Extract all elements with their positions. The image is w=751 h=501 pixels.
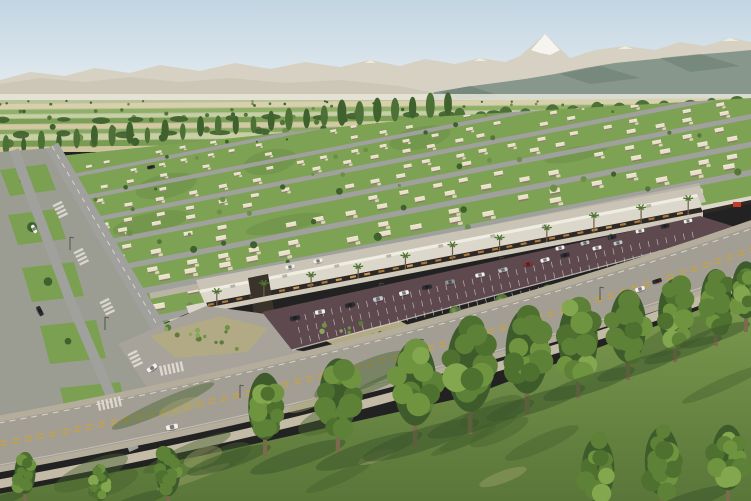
- yard-tree: [490, 135, 495, 140]
- poplar-tree: [38, 131, 45, 152]
- hedgerow-tree: [13, 131, 29, 139]
- poplar-tree: [145, 127, 150, 143]
- tree-foliage: [576, 471, 595, 490]
- house-parapet: [319, 292, 332, 296]
- hedgerow-tree: [254, 128, 270, 134]
- tree-foliage: [166, 454, 177, 465]
- poplar-tree: [285, 108, 293, 131]
- tree-foliage: [522, 315, 544, 337]
- poplar-tree: [409, 97, 416, 119]
- orchard-tree: [94, 109, 98, 113]
- car-glass: [425, 285, 429, 289]
- yard-tree: [423, 130, 427, 134]
- car-glass: [448, 280, 452, 284]
- orchard-tree: [251, 100, 253, 102]
- poplar-tree: [373, 98, 381, 123]
- orchard-tree: [535, 103, 538, 106]
- light-pole-arm: [500, 257, 504, 258]
- yard-tree: [453, 122, 458, 127]
- yard-tree: [250, 241, 257, 248]
- yard-tree: [126, 230, 132, 236]
- orchard-tree: [326, 101, 328, 103]
- tree-foliage: [598, 468, 615, 485]
- shrub: [214, 341, 217, 344]
- orchard-tree: [510, 103, 513, 106]
- poplar-tree: [162, 119, 169, 140]
- orchard-tree: [251, 102, 254, 105]
- yard-tree: [333, 154, 338, 159]
- yard-tree: [311, 173, 314, 176]
- palm-trunk: [311, 275, 312, 288]
- shrub: [224, 330, 227, 333]
- yard-tree: [734, 168, 741, 175]
- palm-trunk: [358, 267, 359, 279]
- poplar-tree: [91, 125, 98, 146]
- yard-tree: [190, 246, 197, 253]
- yard-tree: [667, 131, 671, 135]
- verge-tree: [65, 338, 72, 345]
- orchard-tree: [511, 101, 513, 103]
- yard-tree: [247, 211, 252, 216]
- hedgerow-tree: [128, 117, 144, 122]
- tree-foliage: [570, 312, 592, 334]
- tree-foliage: [698, 298, 717, 317]
- yard-tree: [374, 233, 382, 241]
- tree-foliage: [461, 368, 484, 391]
- yard-tree: [517, 157, 523, 163]
- orchard-tree: [205, 113, 209, 117]
- yard-tree: [220, 197, 226, 203]
- orchard-tree: [324, 100, 326, 102]
- yard-tree: [336, 188, 343, 195]
- tree-foliage: [721, 466, 742, 487]
- yard-tree: [131, 207, 135, 211]
- yard-tree: [398, 184, 401, 187]
- palm-trunk: [593, 216, 594, 234]
- yard-tree: [611, 172, 616, 177]
- tree-foliage: [97, 473, 105, 481]
- yard-tree: [225, 140, 229, 144]
- tree-foliage: [412, 347, 429, 364]
- red-sign: [733, 202, 741, 207]
- orchard-tree: [401, 108, 404, 111]
- orchard-tree: [230, 108, 233, 111]
- orchard-tree: [50, 124, 56, 130]
- yard-tree: [154, 188, 157, 191]
- poplar-tree: [180, 123, 186, 140]
- orchard-tree: [149, 118, 154, 123]
- orchard-tree: [49, 103, 52, 106]
- yard-tree: [280, 184, 285, 189]
- tree-foliage: [561, 338, 579, 356]
- orchard-tree: [280, 120, 285, 125]
- palm-trunk: [688, 199, 689, 215]
- poplar-tree: [321, 105, 328, 126]
- yard-tree: [340, 172, 345, 177]
- tree-foliage: [657, 313, 674, 330]
- orchard-tree: [164, 112, 168, 116]
- house-wing: [734, 218, 740, 222]
- tree-foliage: [314, 397, 336, 419]
- scene-canvas: [0, 0, 751, 501]
- orchard-tree: [463, 105, 466, 108]
- poplar-tree: [355, 101, 363, 125]
- tree-foliage: [674, 309, 694, 329]
- orchard-tree: [47, 115, 52, 120]
- orchard-tree: [330, 105, 333, 108]
- tree-foliage: [260, 419, 277, 436]
- shrub: [319, 329, 324, 334]
- orchard-tree: [537, 100, 539, 102]
- house-facade: [726, 217, 739, 221]
- tree-foliage: [97, 490, 106, 499]
- car-glass: [478, 273, 482, 277]
- poplar-tree: [73, 129, 80, 149]
- shrub: [235, 347, 239, 351]
- tree-foliage: [592, 450, 608, 466]
- yard-tree: [401, 205, 407, 211]
- yard-tree: [286, 138, 288, 140]
- poplar-tree: [233, 116, 239, 134]
- house-parapet: [275, 300, 288, 304]
- tree-foliage: [670, 275, 691, 296]
- yard-tree: [165, 155, 169, 159]
- shrub: [322, 323, 327, 328]
- shrub: [203, 335, 206, 338]
- yard-tree: [550, 185, 557, 192]
- shrub: [225, 325, 230, 330]
- yard-tree: [157, 239, 162, 244]
- tree-foliage: [333, 418, 354, 439]
- shrub: [358, 321, 363, 326]
- yard-tree: [94, 198, 98, 202]
- orchard-tree: [19, 110, 23, 114]
- yard-tree: [123, 185, 128, 190]
- tree-foliage: [466, 324, 487, 345]
- tree-foliage: [21, 480, 32, 491]
- poplar-tree: [391, 98, 399, 122]
- orchard-tree: [203, 126, 209, 132]
- car-glass: [595, 246, 599, 250]
- yard-tree: [188, 233, 191, 236]
- orchard-tree: [284, 103, 287, 106]
- yard-tree: [217, 209, 222, 214]
- shrub: [339, 329, 342, 332]
- tree-foliage: [24, 471, 33, 480]
- poplar-tree: [251, 116, 257, 133]
- orchard-tree: [314, 120, 319, 125]
- palm-trunk: [641, 208, 642, 224]
- orchard-tree: [561, 104, 564, 107]
- tree-foliage: [591, 432, 608, 449]
- tree-foliage: [22, 458, 32, 468]
- tree-foliage: [621, 304, 640, 323]
- car-glass: [638, 229, 642, 233]
- palm-trunk: [405, 256, 406, 270]
- poplar-tree: [337, 100, 346, 126]
- palm-trunk: [499, 238, 500, 252]
- orchard-tree: [253, 104, 256, 107]
- yard-tree: [311, 219, 316, 224]
- hedgerow-tree: [92, 117, 110, 124]
- shrub: [164, 327, 168, 331]
- stall-line: [477, 300, 478, 306]
- hedgerow-tree: [170, 116, 188, 122]
- car-glass: [293, 316, 297, 320]
- poplar-tree: [426, 93, 435, 119]
- yard-tree: [460, 206, 467, 213]
- orchard-tree: [481, 101, 483, 103]
- tree-foliage: [261, 387, 275, 401]
- palm-trunk: [263, 284, 264, 298]
- orchard-tree: [269, 102, 272, 105]
- aerial-render-image: [0, 0, 751, 501]
- shrub: [220, 340, 224, 344]
- house-roof: [725, 212, 739, 222]
- poplar-tree: [197, 116, 204, 136]
- orchard-tree: [65, 100, 67, 102]
- hedgerow-tree: [57, 117, 70, 122]
- house: [725, 212, 740, 224]
- palm-trunk: [452, 245, 453, 261]
- yard-tree: [457, 163, 463, 169]
- verge-tree: [44, 277, 53, 286]
- yard-tree: [363, 148, 368, 153]
- orchard-tree: [90, 102, 92, 104]
- poplar-tree: [444, 92, 452, 115]
- yard-tree: [195, 156, 199, 160]
- orchard-tree: [312, 107, 315, 110]
- shrub: [196, 333, 201, 338]
- poplar-tree: [268, 111, 275, 131]
- tree-foliage: [249, 403, 267, 421]
- poplar-tree: [126, 122, 133, 144]
- light-pole-arm: [380, 283, 384, 284]
- tree-foliage: [606, 327, 626, 347]
- house-facade: [0, 472, 10, 477]
- yard-tree: [65, 461, 70, 466]
- yard-tree: [484, 113, 487, 116]
- tree-foliage: [710, 282, 726, 298]
- tree-foliage: [521, 363, 540, 382]
- tree-foliage: [655, 441, 674, 460]
- shrub: [195, 328, 200, 333]
- poplar-tree: [215, 116, 222, 135]
- tree-foliage: [723, 440, 737, 454]
- orchard-tree: [22, 110, 26, 114]
- shrub: [175, 333, 180, 338]
- house-wing: [41, 465, 48, 470]
- shrub: [189, 333, 192, 336]
- tree-foliage: [625, 321, 643, 339]
- tree-foliage: [162, 474, 176, 488]
- tree-foliage: [339, 394, 363, 418]
- shrub: [348, 331, 351, 334]
- orchard-tree: [142, 100, 144, 102]
- yard-tree: [581, 176, 587, 182]
- yard-tree: [697, 133, 701, 137]
- palm-trunk: [546, 228, 547, 242]
- tree-foliage: [88, 475, 99, 486]
- tree-foliage: [90, 484, 98, 492]
- yard-tree: [487, 158, 492, 163]
- tree-foliage: [504, 352, 524, 372]
- orchard-tree: [6, 102, 8, 104]
- shrub: [348, 326, 351, 329]
- tree-foliage: [407, 393, 431, 417]
- poplar-tree: [109, 125, 116, 146]
- house-parapet: [725, 212, 738, 216]
- yard-tree: [645, 186, 650, 191]
- orchard-tree: [120, 108, 123, 111]
- yard-tree: [256, 141, 258, 143]
- orchard-tree: [244, 113, 248, 117]
- poplar-tree: [303, 109, 310, 129]
- tree-foliage: [333, 359, 355, 381]
- palm-trunk: [216, 292, 217, 307]
- yard-tree: [611, 110, 614, 113]
- orchard-tree: [27, 100, 29, 102]
- orchard-tree: [127, 103, 130, 106]
- car-glass: [318, 310, 322, 314]
- yard-tree: [221, 241, 226, 246]
